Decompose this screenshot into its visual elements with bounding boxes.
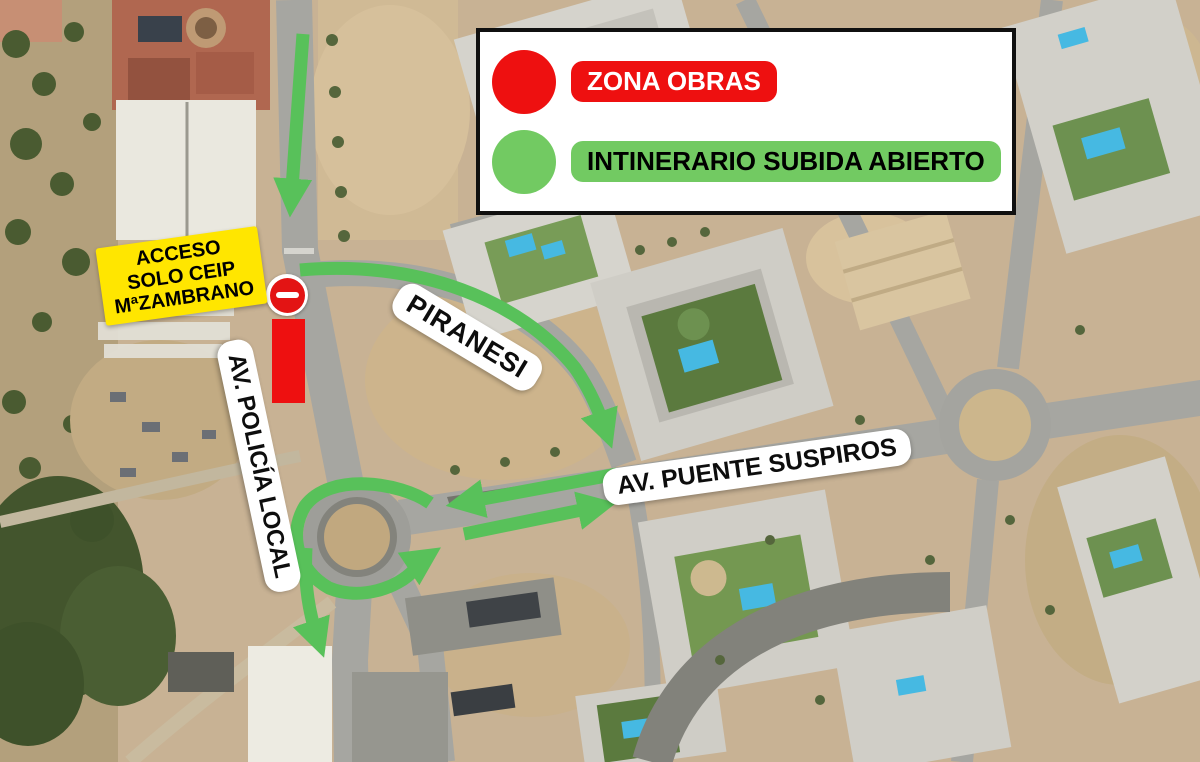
legend-row-zona-obras: ZONA OBRAS [492,50,1012,114]
legend-row-itinerario: INTINERARIO SUBIDA ABIERTO [492,130,1012,194]
legend-label-itinerario: INTINERARIO SUBIDA ABIERTO [571,141,1001,182]
legend-label-zona-obras: ZONA OBRAS [571,61,777,102]
roundabout-east [939,369,1051,481]
no-entry-sign [266,274,308,316]
works-zone-rect [272,319,305,403]
red-circle-icon [492,50,556,114]
no-entry-sign-bar [276,292,299,298]
green-circle-icon [492,130,556,194]
no-entry-sign-disc [270,278,305,313]
roundabout-west [303,483,411,591]
legend-box: ZONA OBRAS INTINERARIO SUBIDA ABIERTO [476,28,1016,215]
traffic-detour-map: ACCESO SOLO CEIP MªZAMBRANO PIRANESI AV.… [0,0,1200,762]
